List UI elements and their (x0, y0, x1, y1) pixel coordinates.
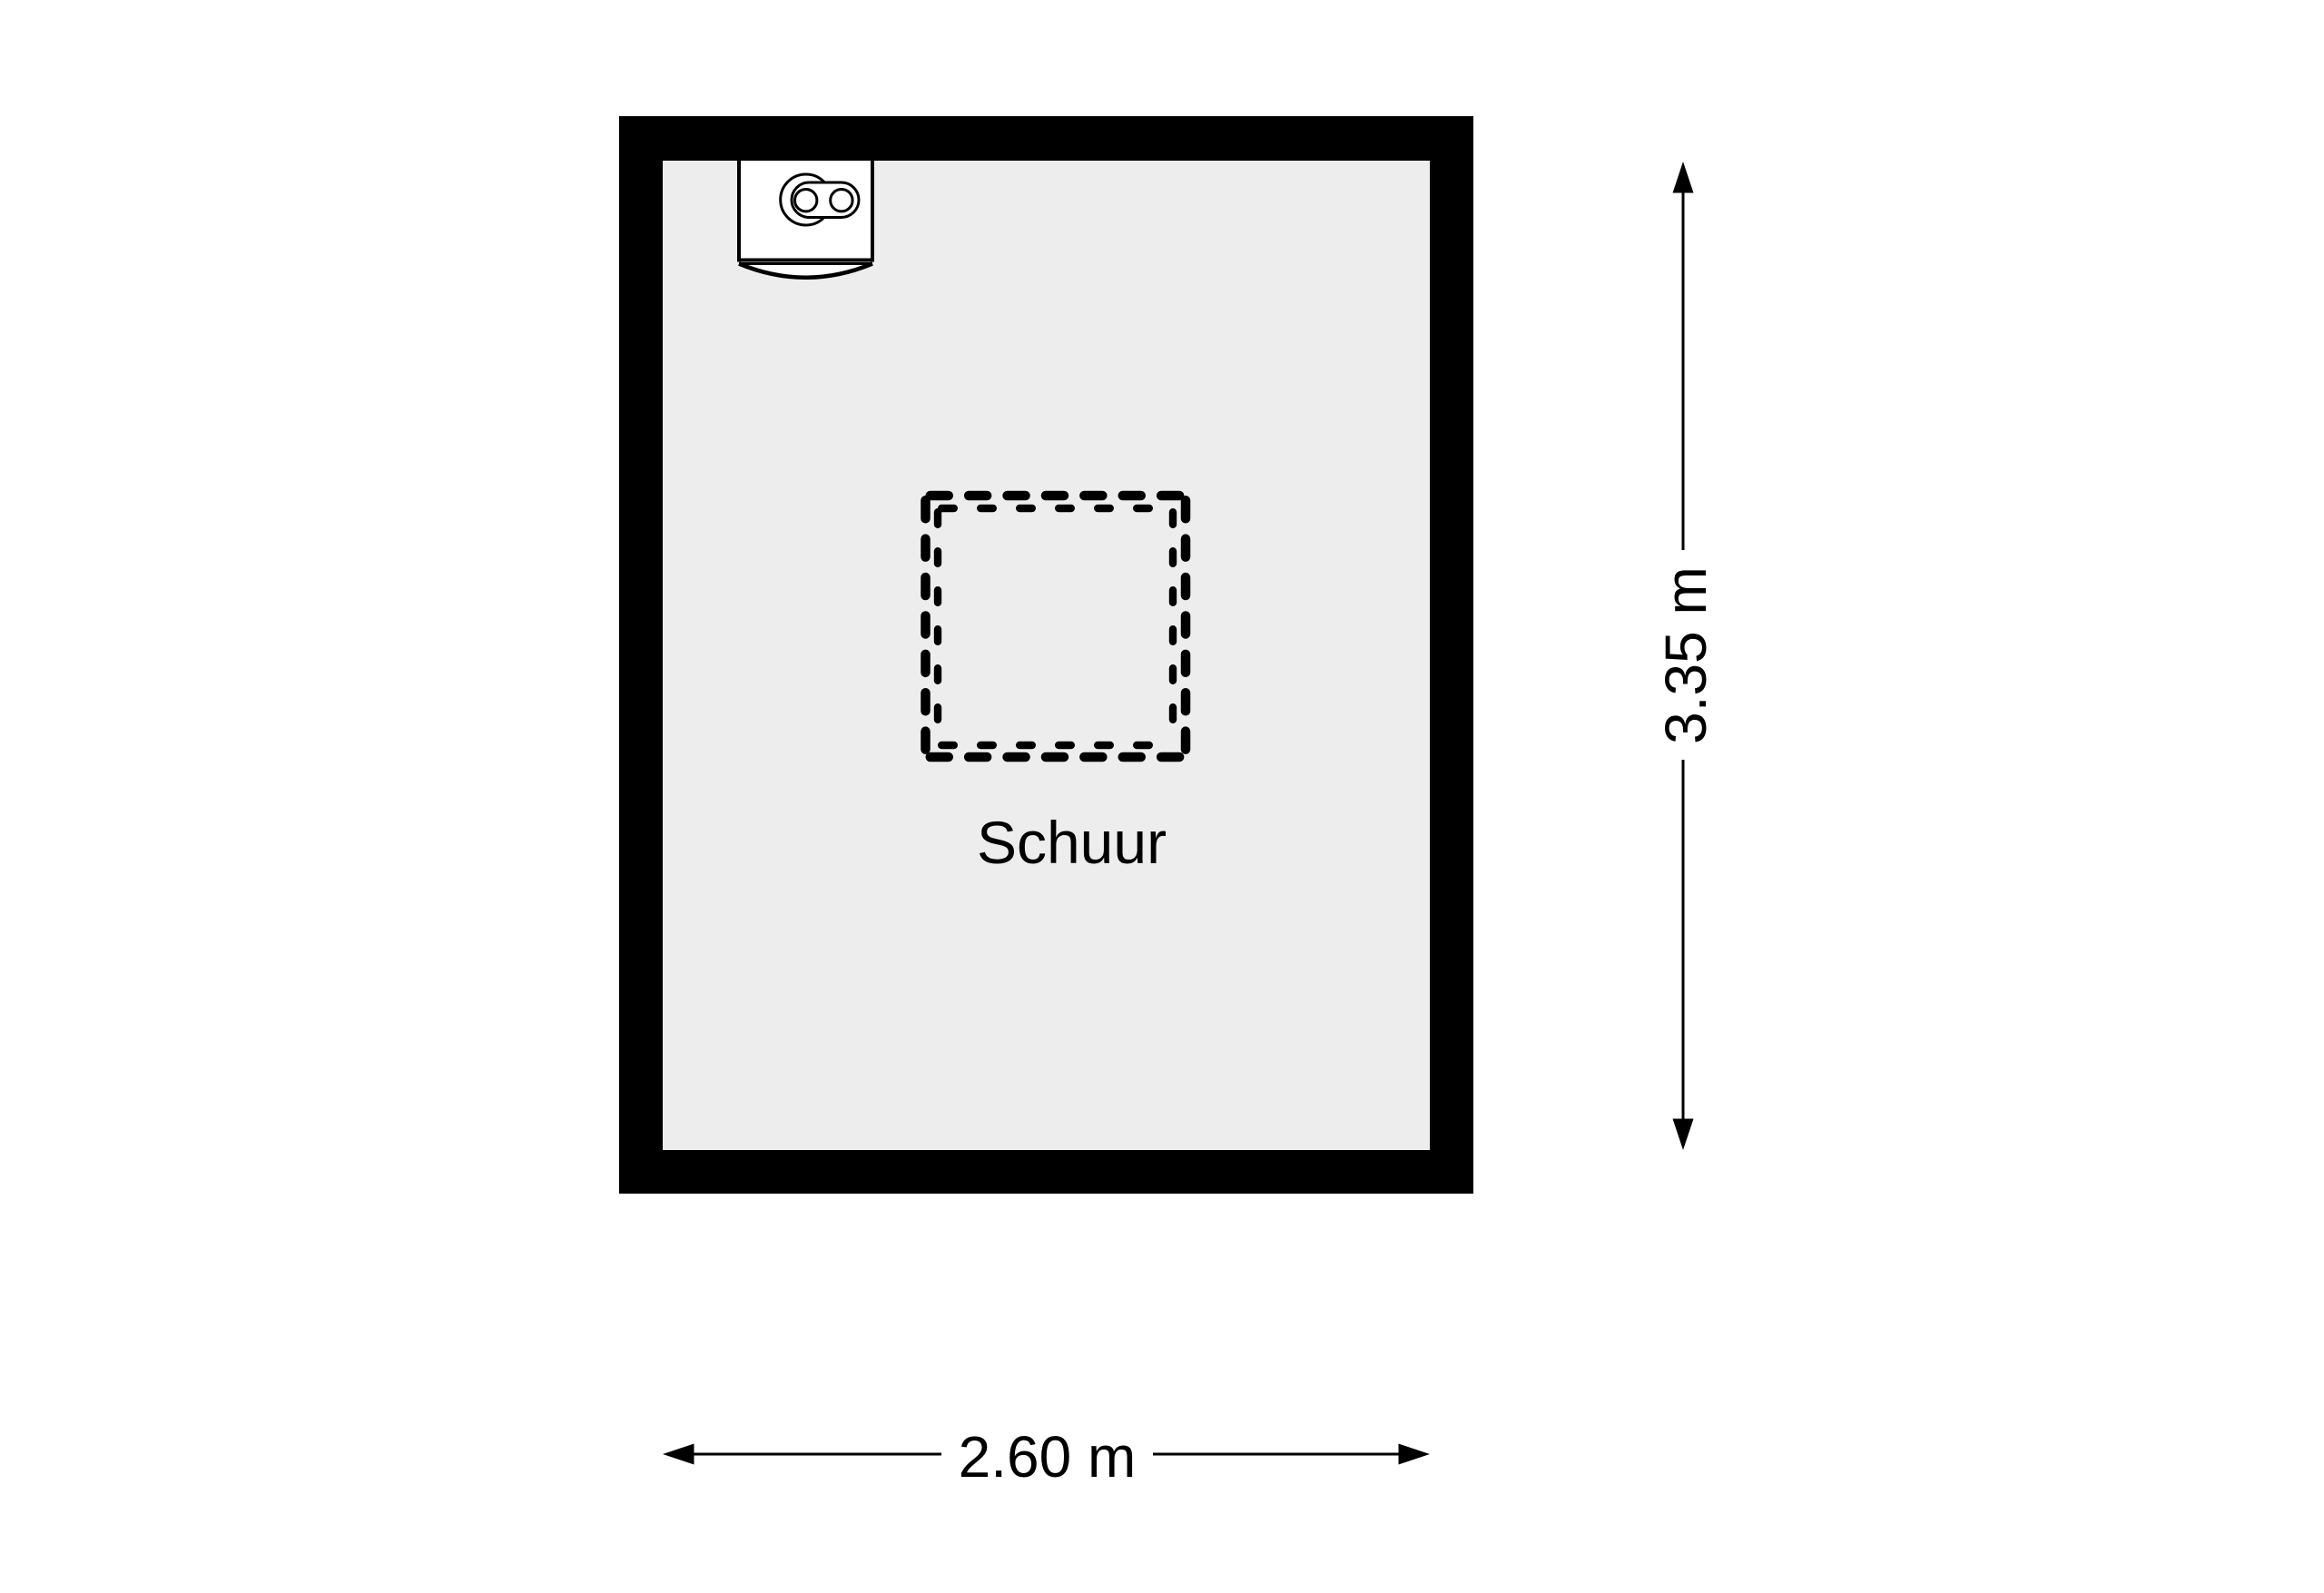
svg-text:3.35 m: 3.35 m (1653, 566, 1718, 744)
svg-text:Schuur: Schuur (977, 809, 1167, 876)
svg-text:2.60 m: 2.60 m (959, 1424, 1137, 1490)
